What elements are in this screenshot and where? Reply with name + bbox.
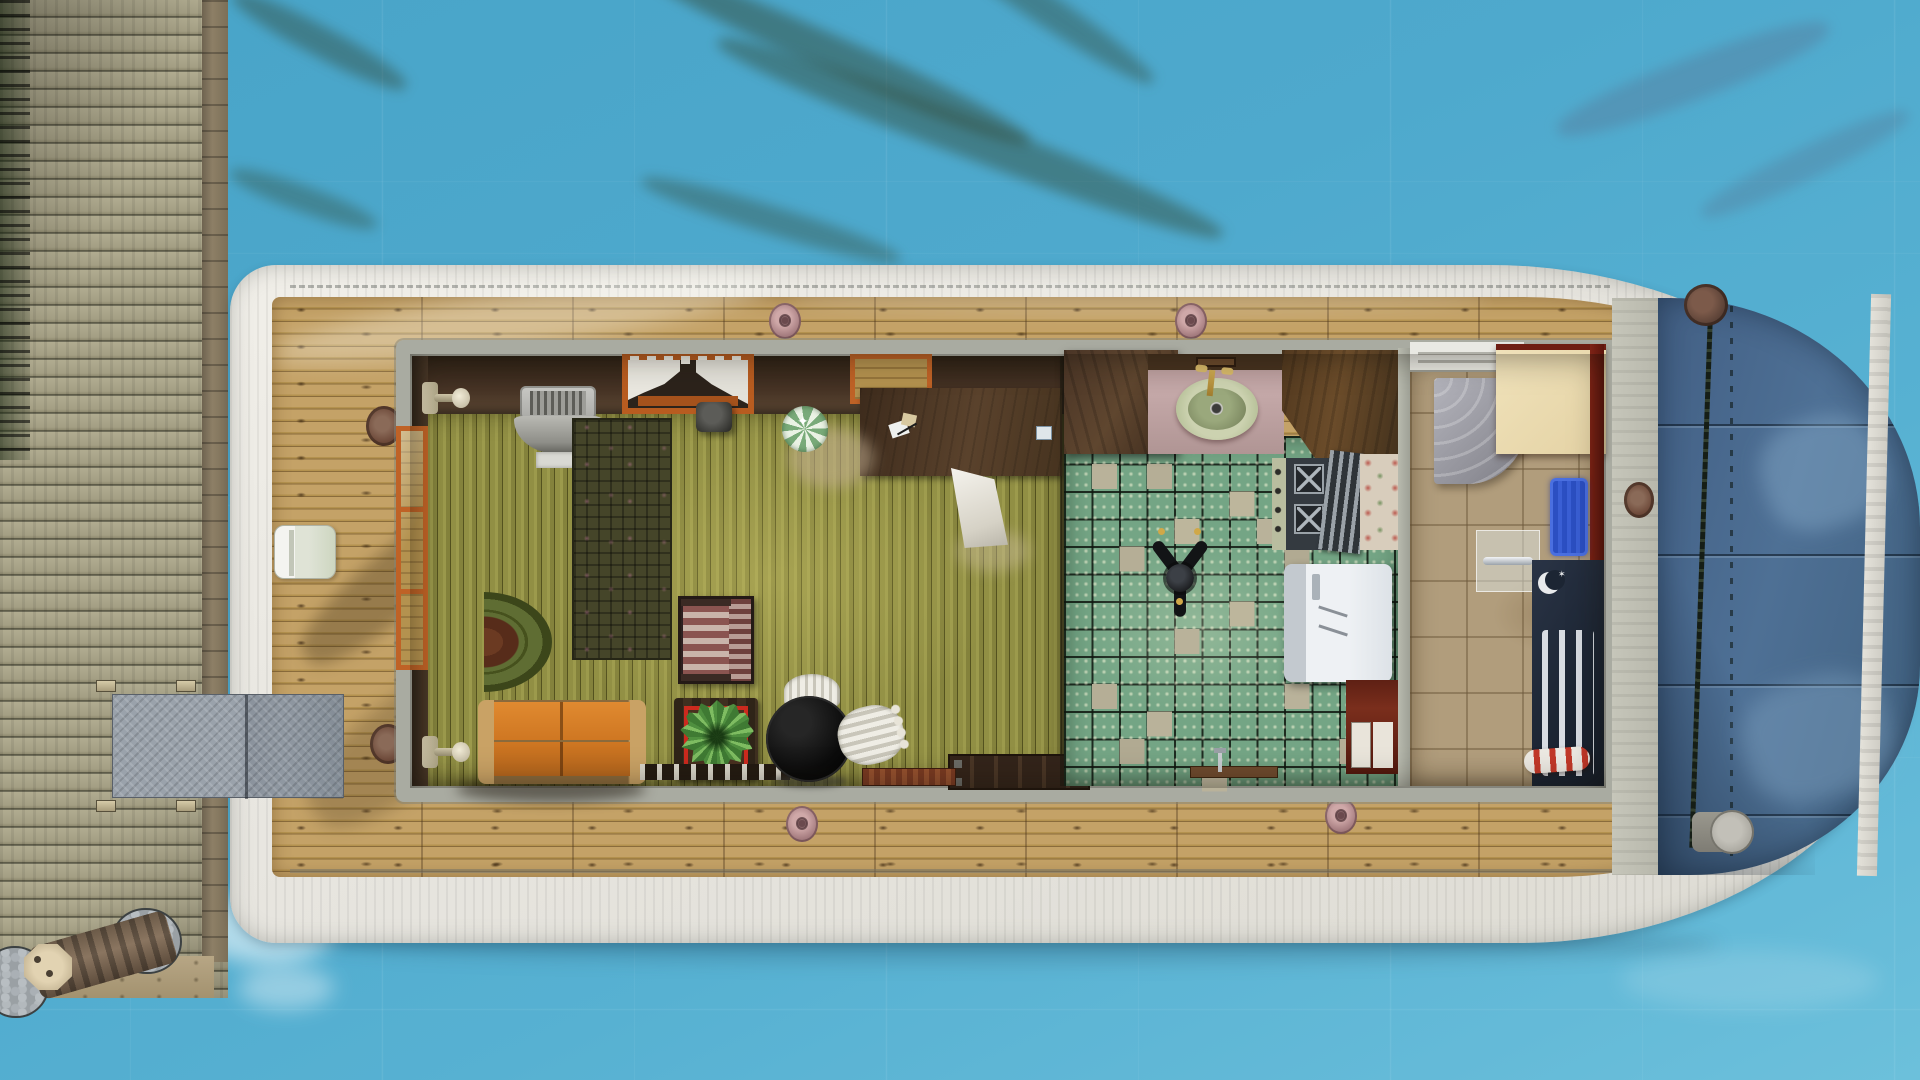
west-windows[interactable] [396, 426, 428, 670]
couch-seat-cushions [494, 742, 630, 776]
canopy-seam [1730, 306, 1733, 866]
ceiling-fan[interactable] [1138, 524, 1222, 608]
water-glint [238, 966, 334, 1010]
counter-backsplash [1148, 354, 1284, 370]
kitchen-mat [1190, 766, 1278, 778]
glass-shower-door[interactable] [1476, 530, 1540, 592]
cherry-cabinet[interactable] [1346, 680, 1398, 774]
dock-shadowed-strip [0, 0, 30, 460]
kitchen-bath-divider [1398, 348, 1410, 786]
fan-blade-tip [1194, 528, 1201, 535]
cabin: ✶ [396, 340, 1620, 802]
capstan[interactable] [1684, 284, 1728, 326]
fan-blade-tip [1158, 528, 1165, 535]
fan-hub [1166, 564, 1194, 592]
ramp-post [96, 680, 116, 692]
gangplank-ramp[interactable] [112, 694, 344, 798]
floor-fixture[interactable] [1218, 748, 1222, 772]
game-viewport: ✶ [0, 0, 1920, 1080]
blue-bath-mat[interactable] [1550, 478, 1588, 556]
stove-knobs [1274, 466, 1282, 542]
star-icon: ✶ [1558, 570, 1566, 580]
bow-walkway [1612, 298, 1658, 875]
couch-back-cushions [494, 702, 630, 740]
hull-seam [290, 869, 1630, 873]
wall-lamp[interactable] [422, 734, 468, 774]
lamp-shade [452, 388, 470, 408]
armchair-arm [681, 599, 731, 606]
refrigerator[interactable] [1284, 564, 1392, 682]
armchair-seat [683, 605, 729, 675]
tv-vent [520, 386, 596, 420]
wall-lamp[interactable] [422, 380, 468, 420]
curtained-window[interactable] [622, 354, 754, 414]
deck-cleat[interactable] [769, 303, 801, 339]
kitchen-tan-tiles [1092, 464, 1117, 489]
lamp-shade [452, 742, 470, 762]
curtain-left [628, 360, 680, 400]
stove-burner [1294, 464, 1324, 494]
floor-lamp[interactable] [782, 406, 828, 452]
water-glint [1620, 950, 1880, 1010]
plaid-rug[interactable] [572, 418, 672, 660]
dock-edge-beam [202, 0, 228, 962]
ramp-post [176, 680, 196, 692]
sunlight-glare [790, 285, 1490, 315]
bottle-shelf[interactable] [640, 764, 790, 780]
armchair-back [729, 599, 751, 681]
bow-cleat[interactable] [1624, 482, 1654, 518]
deck-cleat[interactable] [786, 806, 818, 842]
trash-bin[interactable] [696, 402, 732, 432]
notebook[interactable] [1036, 426, 1052, 440]
deck-cooler-box[interactable] [274, 525, 336, 579]
dock-pier[interactable] [0, 0, 228, 998]
deck-cleat[interactable] [1175, 303, 1207, 339]
crescent-icon [1538, 572, 1560, 594]
baseboard-heater[interactable] [862, 768, 956, 786]
sink-counter[interactable] [1148, 354, 1284, 454]
ramp-post [96, 800, 116, 812]
orange-loveseat[interactable] [478, 700, 646, 790]
deck-cleat[interactable] [1325, 798, 1357, 834]
rolled-towel[interactable] [1523, 746, 1591, 775]
fan-blade-tip [1176, 598, 1183, 605]
ramp-post [176, 800, 196, 812]
sink-drain [1210, 402, 1223, 415]
houseboat: ✶ [230, 265, 1920, 943]
capstan[interactable] [1692, 812, 1732, 852]
piling-top [24, 944, 72, 990]
armchair-arm [681, 674, 731, 681]
striped-armchair[interactable] [678, 596, 754, 684]
bow-section [1612, 298, 1920, 875]
